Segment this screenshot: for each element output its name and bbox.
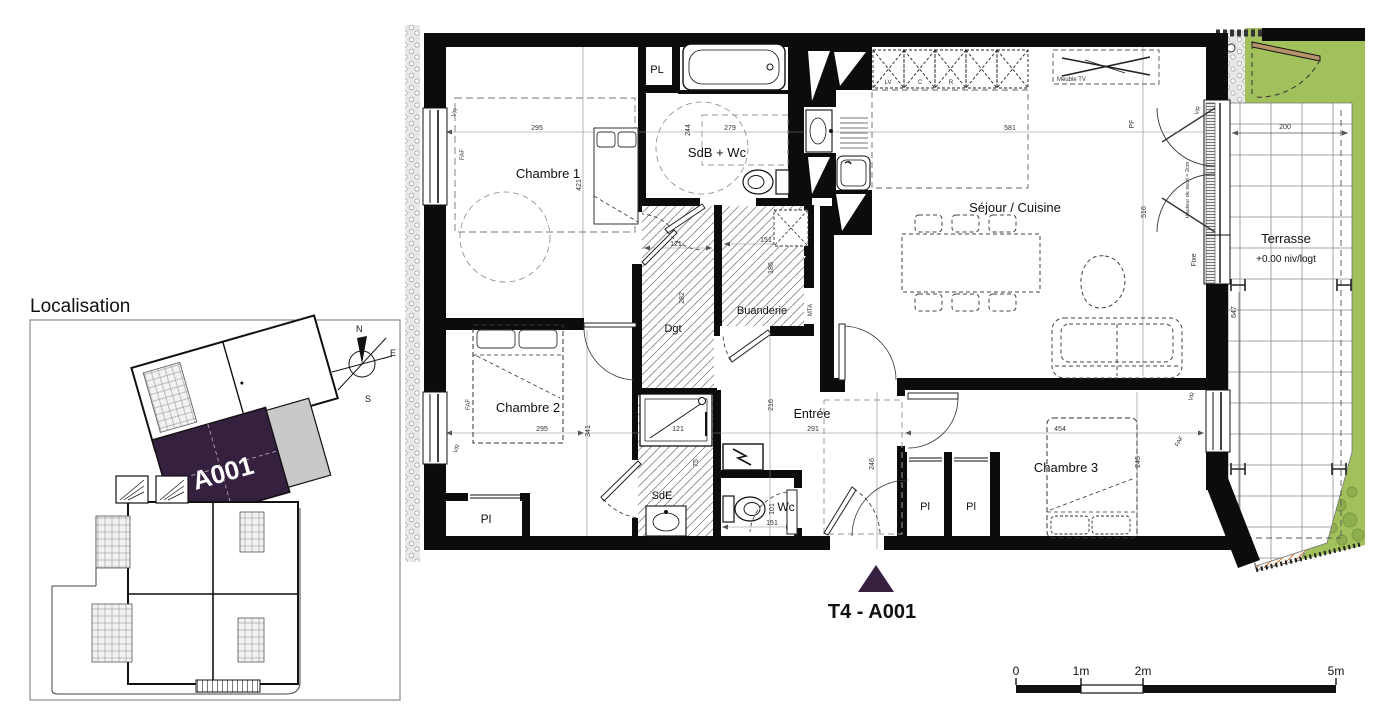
scale-ticks: [1016, 678, 1336, 685]
dim-terrasse-width: 200: [1279, 124, 1291, 131]
terrasse-area: 200 647 Terrasse +0.00 niv/logt: [1218, 103, 1352, 566]
grass-right-strip: [1352, 103, 1365, 455]
dim-c2-w: 295: [536, 426, 548, 433]
terrasse-tiles: [1228, 103, 1352, 566]
vr-chambre3: VR: [1188, 391, 1197, 402]
dim-entree-w: 291: [807, 426, 819, 433]
seuil-label: Hauteur de seuil = 2cm: [1185, 161, 1191, 218]
entrance-triangle: [858, 565, 894, 592]
bed-chambre2: [473, 325, 563, 443]
meuble-tv-label: Meuble TV: [1057, 77, 1086, 83]
gravel-strip-left: [405, 25, 420, 562]
cabinet-c-label: C: [918, 80, 923, 86]
door-chambre3: [908, 393, 958, 448]
entry-steps: [196, 680, 260, 692]
scale-5m: 5m: [1328, 664, 1345, 678]
sejour-label: Séjour / Cuisine: [969, 200, 1061, 215]
toilet-wc: [723, 496, 765, 522]
chambre2-label: Chambre 2: [496, 400, 560, 415]
dim-entree-left: 216: [768, 399, 775, 411]
dim-dgt-w: 121: [670, 241, 682, 248]
scale-1m: 1m: [1073, 664, 1090, 678]
vr-chambre2: VR: [453, 443, 462, 454]
dim-sde-w: 121: [672, 426, 684, 433]
bathtub: [683, 44, 785, 90]
dim-sejour-w: 581: [1004, 125, 1016, 132]
scale-seg-3: [1143, 685, 1336, 693]
window-chambre2: [423, 392, 447, 464]
dining-table: [902, 215, 1040, 311]
kitchen-sink: [837, 118, 870, 190]
dim-entree-v: 246: [869, 458, 876, 470]
electrical-panel: [723, 444, 763, 470]
pl3b-label: Pl: [966, 501, 976, 513]
dim-c3-h: 245: [1135, 456, 1142, 468]
kitchen-counter: [872, 90, 1028, 188]
terrasse-label: Terrasse: [1261, 231, 1311, 246]
dgt-label: Dgt: [664, 323, 681, 335]
dgt-floor: [642, 206, 714, 388]
cabinet-r-label: R: [949, 80, 954, 86]
scale-2m: 2m: [1135, 664, 1152, 678]
dim-sde-door: 75: [693, 459, 700, 467]
faf-chambre2: FAF: [466, 399, 472, 410]
dim-bua-w: 151: [760, 237, 772, 244]
compass-e: E: [390, 348, 396, 358]
scale-0: 0: [1013, 664, 1020, 678]
sdb-label: SdB + Wc: [688, 145, 747, 160]
pl-haut-label: PL: [650, 64, 663, 76]
door-chambre2: [584, 323, 636, 380]
localisation-map: Localisation N E S O A001: [30, 296, 400, 700]
faf-chambre3: FAF: [1175, 435, 1186, 448]
floorplan-page: 200 647 Terrasse +0.00 niv/logt: [0, 0, 1377, 722]
dim-sejour-h: 516: [1141, 206, 1148, 218]
chambre1-label: Chambre 1: [516, 166, 580, 181]
chambre3-label: Chambre 3: [1034, 460, 1098, 475]
cabinet-lv-label: LV: [885, 80, 892, 86]
door-sejour: [839, 324, 896, 380]
door-entree: [824, 487, 880, 535]
garden-wall: [1262, 28, 1365, 41]
pl-bas-label: Pl: [481, 512, 492, 526]
floorplan-drawing: 200 647 Terrasse +0.00 niv/logt: [0, 0, 1377, 722]
dim-wc-h: 101: [769, 503, 776, 515]
dim-c2-h: 341: [585, 425, 592, 437]
dim-bua-h: 186: [768, 262, 775, 274]
washbasin-sde: [646, 506, 686, 536]
walls: [424, 33, 1260, 568]
dim-wc-w: 151: [766, 520, 778, 527]
compass-n: N: [356, 324, 363, 334]
pl3a-label: Pl: [920, 501, 930, 513]
scale-seg-1: [1016, 685, 1081, 693]
terrasse-level: +0.00 niv/logt: [1256, 254, 1316, 265]
shower: [640, 394, 712, 446]
vr-chambre1: VR: [451, 107, 460, 118]
localisation-title: Localisation: [30, 296, 130, 317]
bed-chambre1: [455, 98, 638, 282]
entree-label: Entrée: [794, 407, 831, 421]
washbasin-sdb: [806, 110, 833, 152]
sofa: [1052, 318, 1182, 378]
dim-c1-h: 421: [576, 179, 583, 191]
fixe-label: Fixe: [1191, 253, 1198, 266]
unit-title: T4 - A001: [828, 601, 916, 623]
coffee-table: [1081, 256, 1125, 308]
dim-sdb-w: 279: [724, 125, 736, 132]
faf-chambre1: FAF: [460, 149, 466, 160]
window-chambre3: [1206, 390, 1230, 452]
scale-seg-2: [1081, 685, 1143, 693]
dim-terrasse-height: 647: [1231, 306, 1238, 318]
pf-label: PF: [1129, 120, 1136, 129]
vr-sejour: VR: [1194, 105, 1203, 116]
dim-c3-w: 454: [1054, 426, 1066, 433]
dim-dgt-h: 282: [679, 292, 686, 304]
buanderie-label: Buanderie: [737, 305, 787, 317]
gravel-strip-top: [1226, 30, 1245, 103]
unit-title-group: T4 - A001: [828, 565, 916, 623]
washing-machine: [774, 210, 808, 246]
dim-c1-w: 295: [531, 125, 543, 132]
dim-sdb-h: 244: [685, 124, 692, 136]
compass-s: S: [365, 394, 371, 404]
sde-label: SdE: [652, 490, 673, 502]
bed-chambre3: [1047, 418, 1137, 538]
drainboard: [840, 118, 868, 148]
wc-label: Wc: [777, 500, 794, 514]
toilet-sdb: [743, 170, 789, 194]
scale-bar: 0 1m 2m 5m: [1013, 664, 1345, 693]
window-chambre1: [423, 108, 447, 205]
mta-label: MTA: [808, 304, 814, 316]
